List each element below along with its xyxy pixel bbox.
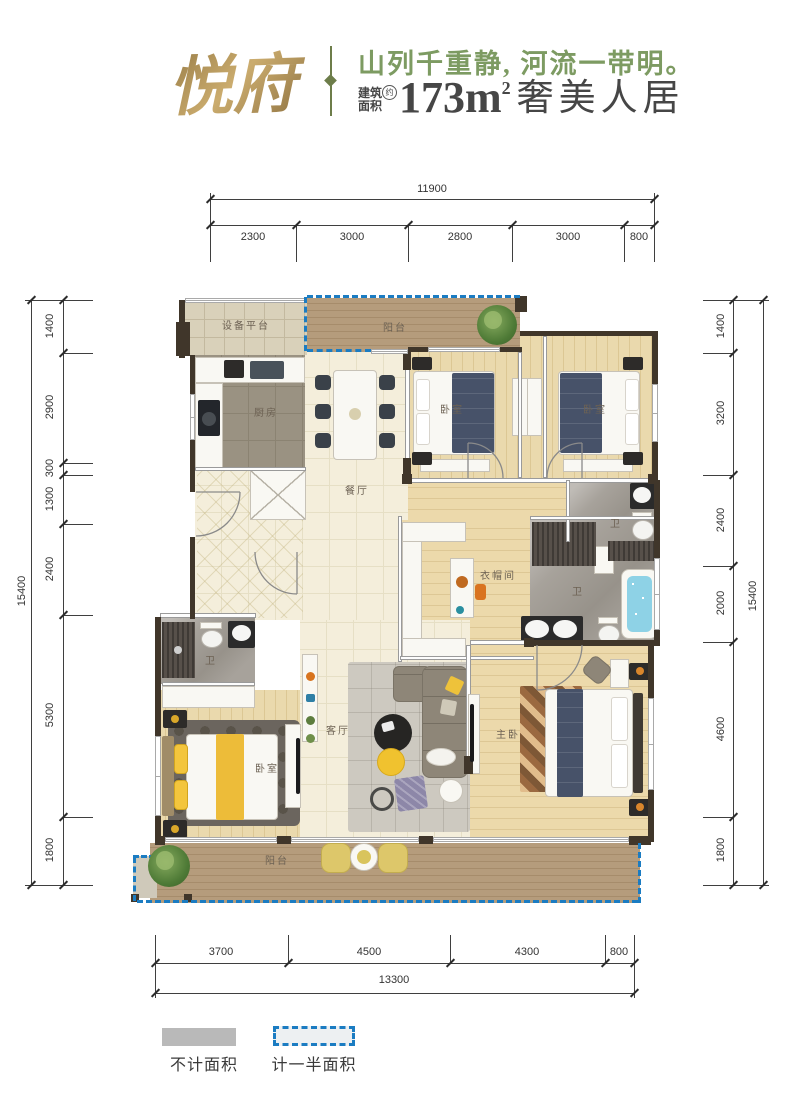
window bbox=[185, 298, 307, 303]
plant bbox=[148, 845, 190, 887]
window bbox=[155, 736, 161, 816]
decor-teal bbox=[456, 606, 464, 614]
sink-basin bbox=[553, 620, 577, 638]
half-area-boundary bbox=[133, 857, 136, 901]
dim-top-seg: 800 bbox=[614, 231, 664, 243]
pillow bbox=[611, 744, 628, 788]
nightstand bbox=[623, 452, 643, 465]
headboard bbox=[633, 693, 643, 793]
foyer-closet bbox=[250, 470, 306, 520]
plant-small bbox=[306, 734, 315, 743]
dim-bottom-seg: 4500 bbox=[344, 946, 394, 958]
room-label-bedroom1: 卧室 bbox=[432, 401, 472, 416]
shower bbox=[608, 541, 656, 561]
window bbox=[371, 349, 408, 354]
bed-runner bbox=[216, 734, 244, 820]
toilet bbox=[632, 520, 654, 540]
headboard bbox=[162, 736, 174, 816]
balcony-table-plate bbox=[357, 850, 371, 864]
room-label-bedroom2: 卧室 bbox=[575, 401, 615, 416]
room-label-balcony-top: 阳台 bbox=[375, 319, 415, 334]
nightstand bbox=[623, 357, 643, 370]
chair bbox=[475, 584, 486, 600]
decor-orange bbox=[306, 672, 315, 681]
dim-bottom-seg: 800 bbox=[594, 946, 644, 958]
tv bbox=[470, 704, 474, 762]
coffee-table bbox=[374, 714, 412, 752]
plant bbox=[477, 305, 517, 345]
dim-left-seg: 5300 bbox=[44, 685, 56, 745]
tv bbox=[296, 738, 300, 794]
half-area-boundary bbox=[304, 297, 307, 351]
dim-right-seg: 3200 bbox=[715, 383, 727, 443]
plant-small bbox=[306, 716, 315, 725]
dining-centerpiece bbox=[349, 408, 361, 420]
dim-top-seg: 3000 bbox=[327, 231, 377, 243]
room-label-bath-top: 卫 bbox=[606, 515, 626, 530]
desk bbox=[610, 659, 629, 688]
kitchen-sink bbox=[250, 361, 284, 379]
nightstand bbox=[412, 452, 432, 465]
stool bbox=[370, 787, 394, 811]
nightstand bbox=[412, 357, 432, 370]
wardrobe bbox=[402, 638, 466, 658]
dim-right-seg: 4600 bbox=[715, 699, 727, 759]
pillow bbox=[174, 780, 188, 810]
pillow bbox=[611, 697, 628, 741]
room-label-kitchen: 厨房 bbox=[246, 404, 286, 419]
dim-right-seg: 2400 bbox=[715, 490, 727, 550]
dining-chair bbox=[315, 404, 331, 419]
sofa-pillow bbox=[426, 748, 456, 766]
bath-wardrobe bbox=[532, 522, 596, 566]
approx-badge: 约 bbox=[382, 85, 397, 100]
dining-chair bbox=[315, 433, 331, 448]
room-label-balcony-bottom: 阳台 bbox=[257, 852, 297, 867]
pillow bbox=[625, 379, 639, 411]
room-label-bedroom3: 卧室 bbox=[247, 760, 287, 775]
dim-bottom-seg: 4300 bbox=[502, 946, 552, 958]
project-logo: 悦府 bbox=[166, 31, 329, 129]
sink-basin bbox=[232, 625, 251, 641]
lamp bbox=[636, 803, 644, 811]
window bbox=[291, 837, 419, 842]
dining-chair bbox=[379, 404, 395, 419]
pillow bbox=[416, 413, 430, 445]
ottoman bbox=[377, 748, 405, 776]
dining-chair bbox=[315, 375, 331, 390]
area-suffix: 奢美人居 bbox=[517, 80, 685, 118]
dim-left-seg: 2400 bbox=[44, 539, 56, 599]
room-label-bath-second: 卫 bbox=[201, 652, 221, 667]
window bbox=[165, 837, 277, 842]
room-label-closet: 衣帽间 bbox=[468, 567, 528, 582]
floorplan-page: { "header": { "logo": "悦府", "tagline": "… bbox=[0, 0, 800, 1120]
toilet-tank bbox=[200, 622, 222, 629]
legend-swatch-not-counted bbox=[162, 1028, 236, 1046]
area-value: 173m2 bbox=[399, 78, 511, 118]
wardrobe bbox=[402, 522, 466, 542]
half-area-boundary bbox=[638, 843, 641, 903]
pillow bbox=[174, 744, 188, 774]
dim-top-seg: 2300 bbox=[228, 231, 278, 243]
throw-blanket bbox=[394, 775, 428, 812]
dim-bottom-total: 13300 bbox=[369, 974, 419, 986]
room-label-master: 主卧 bbox=[488, 726, 528, 741]
sink-basin bbox=[633, 487, 651, 503]
side-table bbox=[439, 779, 463, 803]
area-exponent: 2 bbox=[502, 78, 511, 98]
legend-swatch-half-counted bbox=[273, 1026, 355, 1046]
decor-blue bbox=[306, 694, 315, 702]
bathtub-water bbox=[627, 576, 652, 632]
blanket bbox=[557, 689, 583, 797]
balcony-chair bbox=[321, 843, 351, 873]
dim-left-total: 15400 bbox=[16, 561, 28, 621]
pillow bbox=[625, 413, 639, 445]
pattern-pillow bbox=[440, 699, 457, 716]
half-area-boundary bbox=[307, 349, 371, 352]
window bbox=[654, 558, 660, 630]
dim-top-total: 11900 bbox=[407, 183, 457, 195]
corridor-floor bbox=[408, 483, 566, 520]
dining-chair bbox=[379, 375, 395, 390]
window bbox=[648, 698, 654, 790]
dining-chair bbox=[379, 433, 395, 448]
legend-label-not-counted: 不计面积 bbox=[149, 1051, 259, 1075]
dim-right-seg: 1800 bbox=[715, 820, 727, 880]
area-number: 173m bbox=[399, 73, 502, 122]
kitchen-appliance bbox=[224, 360, 244, 378]
sink-basin bbox=[525, 620, 549, 638]
vanity-cabinet bbox=[162, 686, 255, 708]
window bbox=[652, 384, 658, 442]
window bbox=[428, 347, 500, 352]
dim-left-seg: 1400 bbox=[44, 296, 56, 356]
dim-left-seg: 1800 bbox=[44, 820, 56, 880]
area-line: 建筑 面积 约 173m2 奢美人居 bbox=[358, 78, 685, 118]
room-label-bath-master: 卫 bbox=[568, 583, 588, 598]
decor-flowers bbox=[456, 576, 468, 588]
dim-bottom-seg: 3700 bbox=[196, 946, 246, 958]
shower-head bbox=[174, 646, 182, 654]
legend-label-half-counted: 计一半面积 bbox=[259, 1051, 369, 1075]
window bbox=[190, 394, 195, 440]
hall-wardrobe bbox=[512, 378, 542, 436]
cooktop-burner bbox=[202, 412, 216, 426]
room-label-dining: 餐厅 bbox=[337, 482, 377, 497]
lamp bbox=[636, 667, 644, 675]
toilet bbox=[201, 630, 223, 648]
dim-right-total: 15400 bbox=[747, 566, 759, 626]
half-area-boundary bbox=[137, 900, 638, 903]
dim-right-seg: 1400 bbox=[715, 296, 727, 356]
area-prefix: 建筑 面积 约 bbox=[358, 87, 397, 113]
lamp bbox=[171, 715, 179, 723]
room-label-living: 客厅 bbox=[318, 722, 358, 737]
lamp bbox=[171, 825, 179, 833]
dim-right-seg: 2000 bbox=[715, 573, 727, 633]
dim-left-seg: 1300 bbox=[44, 469, 56, 529]
toilet-tank bbox=[598, 617, 618, 624]
dim-top-seg: 2800 bbox=[435, 231, 485, 243]
dim-top-seg: 3000 bbox=[543, 231, 593, 243]
room-label-equipment: 设备平台 bbox=[216, 317, 276, 332]
pillow bbox=[416, 379, 430, 411]
half-area-boundary bbox=[307, 295, 520, 298]
balcony-chair bbox=[378, 843, 408, 873]
window bbox=[433, 837, 629, 842]
area-prefix-line2: 面积 bbox=[358, 100, 382, 113]
dim-left-seg: 2900 bbox=[44, 377, 56, 437]
